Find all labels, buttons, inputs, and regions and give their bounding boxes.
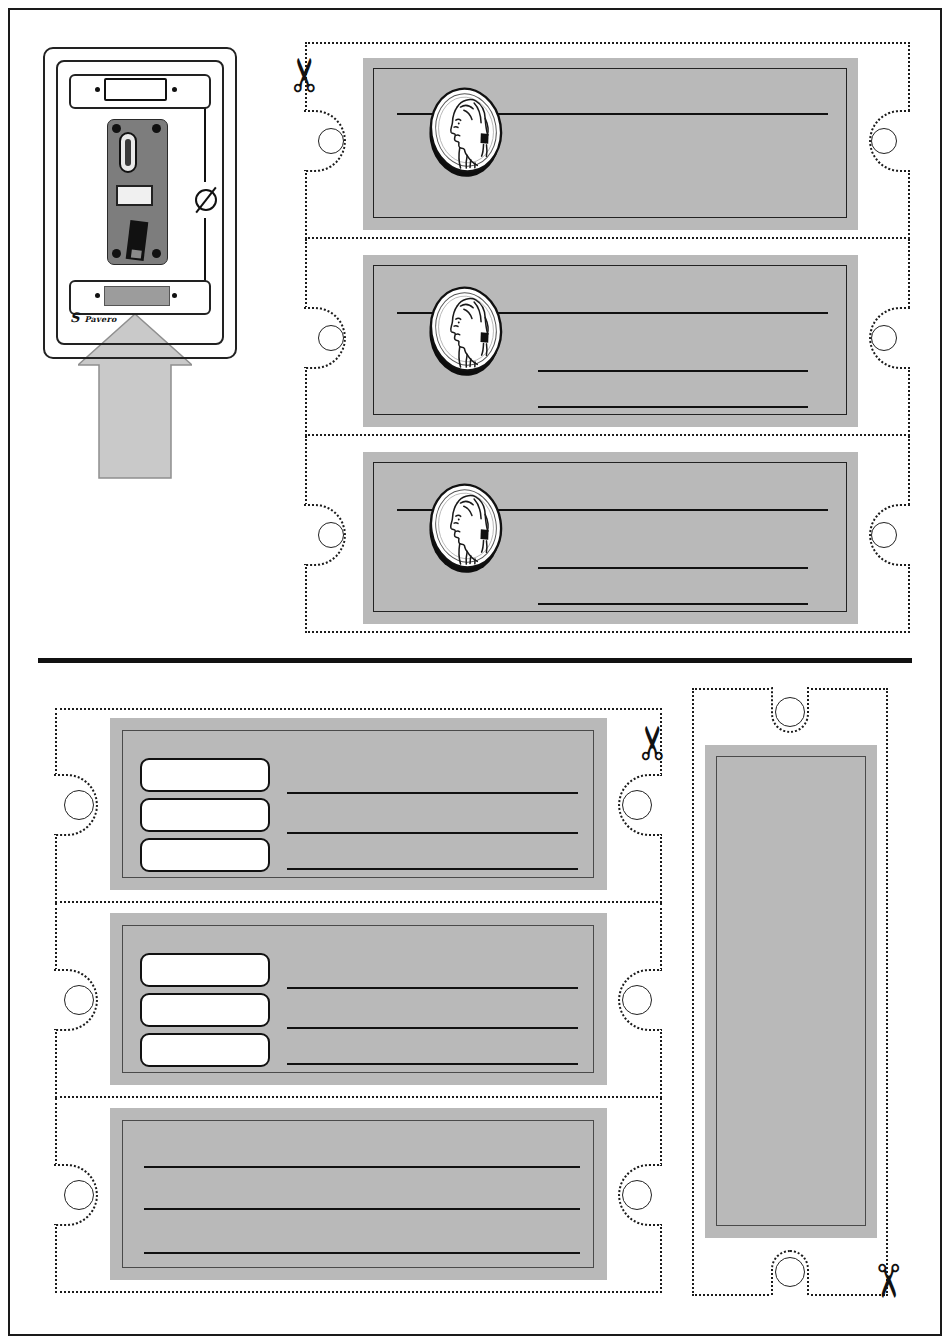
rivet-dot [172, 87, 177, 92]
price-box [140, 953, 270, 987]
coin-acceptor-diagram: S Pavero [0, 0, 280, 520]
punch-hole [64, 790, 94, 820]
write-line [144, 1252, 580, 1254]
label-inner-frame [122, 1120, 594, 1268]
price-label-card-1 [55, 708, 662, 903]
punch-hole [871, 522, 897, 548]
punch-hole [871, 325, 897, 351]
punch-hole [622, 985, 652, 1015]
punch-hole [318, 325, 344, 351]
write-line [538, 406, 808, 408]
label-inner-frame [716, 756, 866, 1226]
price-label-card-3 [55, 1098, 662, 1293]
screw-icon [152, 249, 161, 258]
rivet-dot [95, 87, 100, 92]
write-line [538, 370, 808, 372]
device-seam-line [204, 103, 206, 182]
write-line [287, 832, 578, 834]
write-line [144, 1208, 580, 1210]
screw-icon [112, 124, 121, 133]
rivet-dot [172, 293, 177, 298]
coin-label-card-1 [305, 42, 910, 239]
write-line [287, 1027, 578, 1029]
price-box [140, 838, 270, 872]
scissors-icon: ✂ [282, 52, 328, 98]
punch-hole [64, 985, 94, 1015]
rivet-dot [95, 293, 100, 298]
bottom-label-slot [104, 286, 170, 306]
coin-slot-opening[interactable] [125, 139, 131, 166]
lever-tip [131, 249, 142, 258]
vertical-label-card [692, 688, 888, 1296]
price-box [140, 758, 270, 792]
coin-label-card-2 [305, 239, 910, 436]
price-window [116, 185, 153, 206]
punch-hole [775, 1257, 805, 1287]
punch-hole [871, 128, 897, 154]
write-line [287, 792, 578, 794]
coin-label-card-3 [305, 436, 910, 633]
scissors-icon: ✂ [630, 720, 676, 766]
section-divider [38, 658, 912, 663]
punch-hole [318, 522, 344, 548]
punch-hole [622, 1180, 652, 1210]
device-seam-line [204, 218, 206, 281]
brand-logo-mark: S [70, 310, 79, 325]
top-label-slot [104, 78, 167, 101]
price-box [140, 1033, 270, 1067]
brand-logo-text: Pavero [84, 314, 116, 324]
brand-logo: S Pavero [70, 307, 117, 326]
price-label-card-2 [55, 903, 662, 1098]
price-box [140, 798, 270, 832]
punch-hole [318, 128, 344, 154]
write-line [144, 1166, 580, 1168]
screw-icon [152, 124, 161, 133]
jefferson-nickel-icon [423, 477, 509, 575]
write-line [287, 987, 578, 989]
write-line [538, 567, 808, 569]
label-panel [705, 745, 877, 1238]
jefferson-nickel-icon [423, 81, 509, 179]
write-line [287, 868, 578, 870]
scissors-icon: ✂ [865, 1258, 911, 1304]
price-box [140, 993, 270, 1027]
screw-head-icon [195, 189, 217, 211]
punch-hole [622, 790, 652, 820]
label-panel [110, 1108, 607, 1280]
punch-hole [775, 697, 805, 727]
write-line [538, 603, 808, 605]
jefferson-nickel-icon [423, 280, 509, 378]
screw-icon [112, 249, 121, 258]
punch-hole [64, 1180, 94, 1210]
write-line [287, 1063, 578, 1065]
